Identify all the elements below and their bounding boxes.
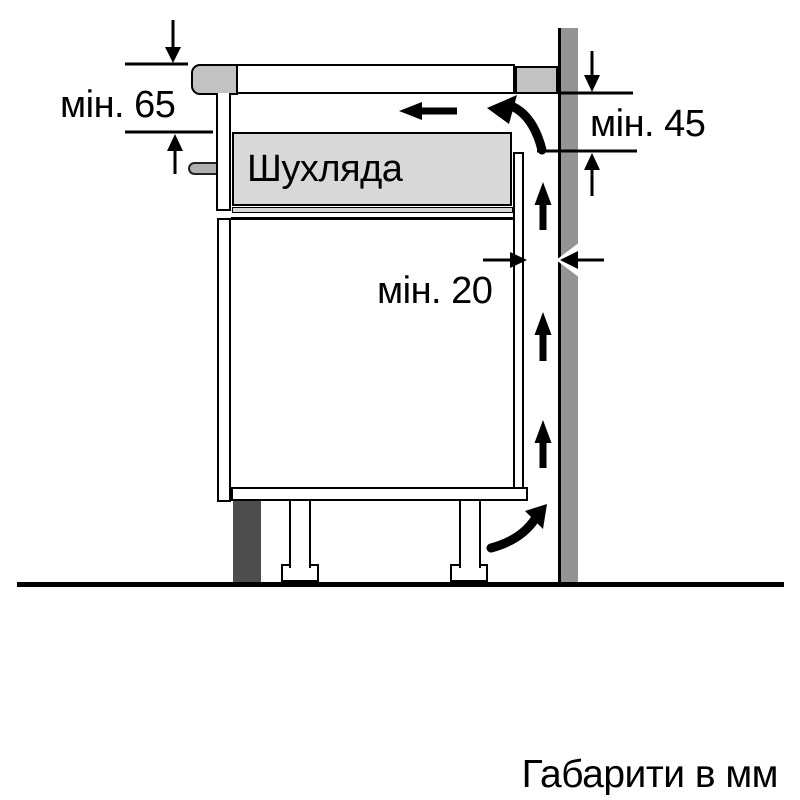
floor-line [17,582,784,587]
hob-edge-profile [191,64,238,95]
cabinet-bottom-panel [231,487,528,501]
airflow-up-arrow-icon [535,182,552,230]
cabinet-back-panel [513,152,524,500]
worktop-end-strip [515,66,558,94]
dimension-label-min65: мін. 65 [60,86,175,124]
cabinet-front-panel-upper [216,93,231,211]
cabinet-front-panel-lower [217,218,231,502]
drawer-box: Шухляда [232,132,512,206]
caption-dimensions-in-mm: Габарити в мм [522,755,778,794]
wall [558,28,578,582]
airflow-up-arrow-icon [535,420,552,468]
leg-stem [459,500,481,568]
fixing-pin [188,162,218,175]
plinth [233,501,261,582]
cabinet-top-panel [231,217,513,220]
dimension-label-min45: мін. 45 [590,105,705,143]
airflow-left-arrow-icon [399,102,457,120]
airflow-up-arrow-icon [535,312,552,361]
dim-arrow-up-icon [167,134,183,151]
dim-arrow-down-icon [584,75,600,92]
dim-arrow-up-icon [584,153,600,170]
installation-clearance-diagram: Шухляда [0,0,800,800]
dim-arrow-down-icon [165,47,181,63]
worktop [236,64,515,94]
drawer-bottom-strip [232,207,513,213]
drawer-label: Шухляда [247,148,402,191]
dimension-label-min20: мін. 20 [377,272,492,310]
leg-stem [289,500,311,568]
airflow-curve-bottom-icon [491,504,547,548]
